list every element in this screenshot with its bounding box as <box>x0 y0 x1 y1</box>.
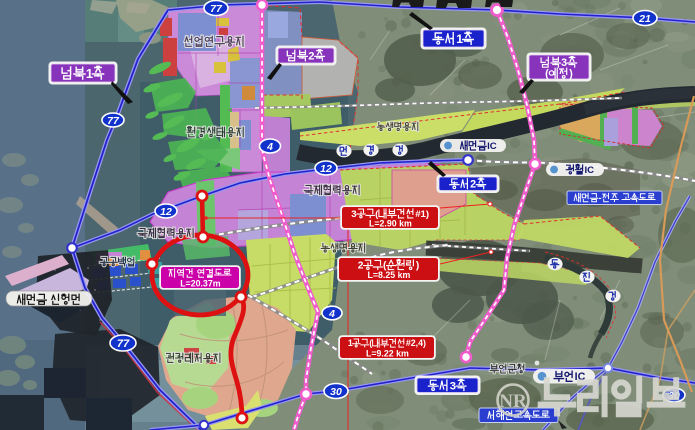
svg-text:1: 1 <box>86 66 93 81</box>
svg-text:L=8.25 km: L=8.25 km <box>368 270 411 280</box>
svg-text:77: 77 <box>117 338 130 350</box>
svg-text:NR: NR <box>499 391 527 412</box>
svg-text:12: 12 <box>160 206 172 218</box>
svg-text:12: 12 <box>320 163 332 175</box>
svg-text:21: 21 <box>638 13 651 25</box>
svg-text:(: ( <box>369 338 372 348</box>
svg-text:2: 2 <box>358 261 364 272</box>
svg-text:L=2.90 km: L=2.90 km <box>369 219 412 229</box>
svg-text:2: 2 <box>470 179 476 191</box>
svg-text:L=20.37m: L=20.37m <box>180 279 221 289</box>
svg-text:(: ( <box>545 68 549 80</box>
svg-text:3: 3 <box>351 209 356 220</box>
svg-text:4: 4 <box>266 141 273 153</box>
svg-text:): ) <box>416 261 419 272</box>
svg-text:77: 77 <box>107 115 120 127</box>
svg-text:#2,4): #2,4) <box>406 338 426 348</box>
svg-text:30: 30 <box>330 386 342 398</box>
svg-text:IC: IC <box>487 141 497 152</box>
svg-text:L=9.22 km: L=9.22 km <box>366 349 409 359</box>
svg-text:1: 1 <box>348 338 353 348</box>
svg-text:1: 1 <box>456 32 463 46</box>
svg-text:77: 77 <box>210 3 223 15</box>
svg-text:#1): #1) <box>415 209 429 220</box>
svg-text:3: 3 <box>450 380 456 392</box>
svg-text:3: 3 <box>561 57 567 69</box>
svg-text:IC: IC <box>585 165 595 176</box>
svg-text:4: 4 <box>328 308 335 320</box>
svg-text:): ) <box>569 68 573 80</box>
svg-text:2: 2 <box>308 51 314 63</box>
svg-text:-: - <box>599 193 602 203</box>
